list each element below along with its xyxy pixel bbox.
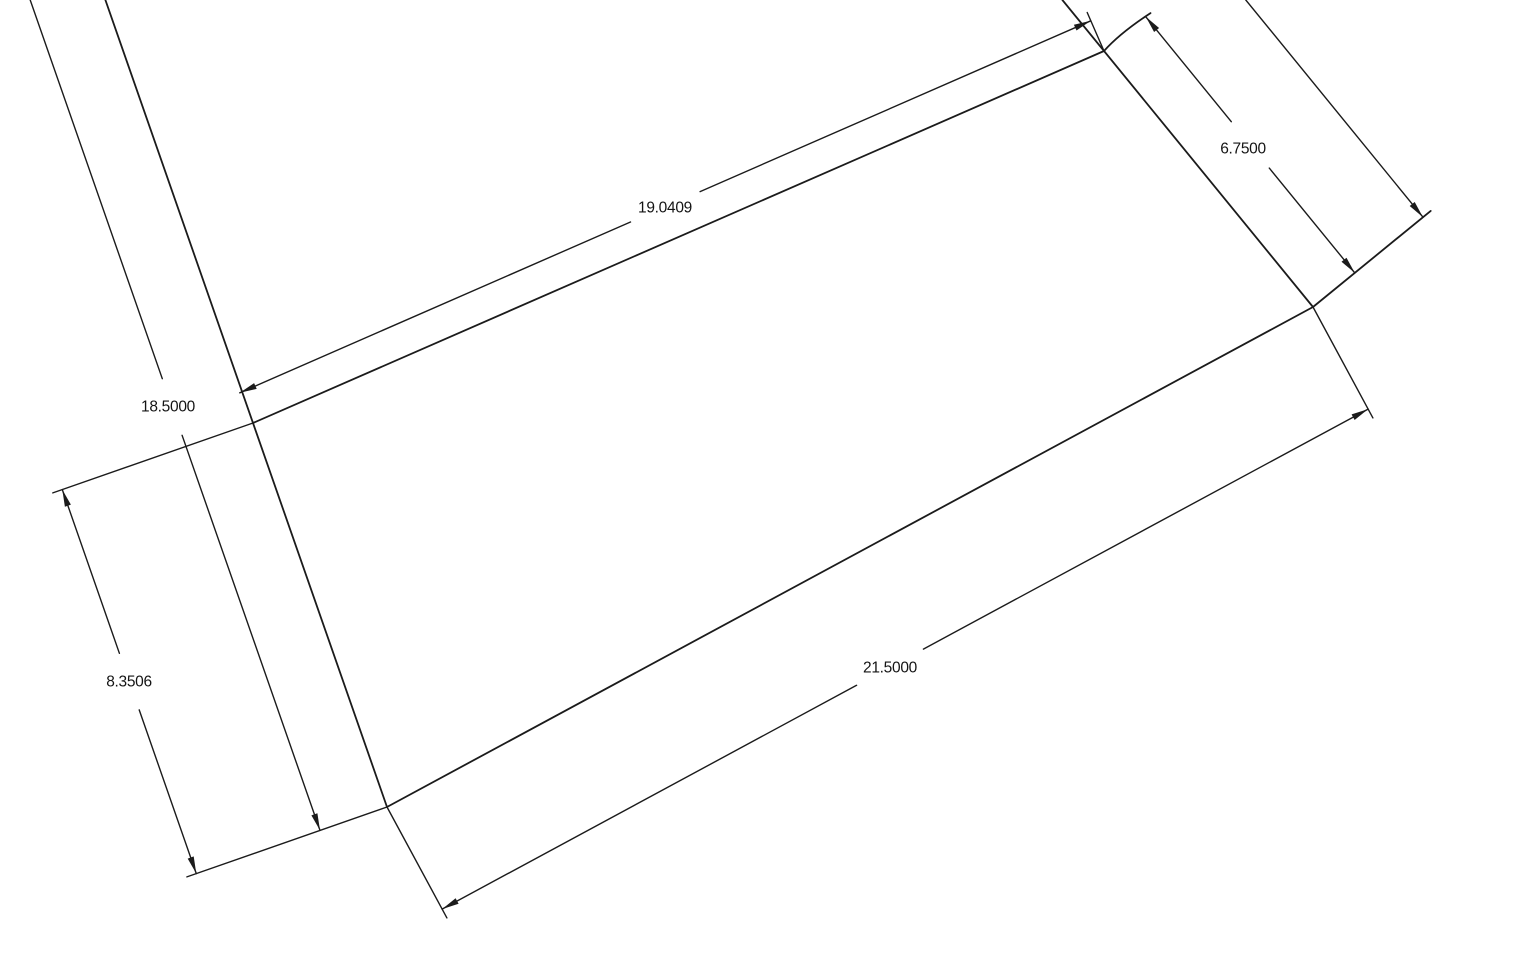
cad-drawing-canvas: 19.0409 6.7500 18.5000 8.3506 21.5000 <box>0 0 1528 960</box>
dim-line-left-lower-segment <box>139 710 196 874</box>
dim-line-flap-upper-segment <box>1146 17 1232 122</box>
dim-label-left-strip-length: 18.5000 <box>141 399 196 416</box>
dim-label-right-flap-length: 6.7500 <box>1220 141 1266 158</box>
arrowhead-left-dim-bottom <box>188 856 197 873</box>
flap-top-arc-edge <box>1104 13 1151 51</box>
right-fold-edge <box>1062 0 1313 307</box>
ext-line-bottom-dim-right <box>1313 307 1373 418</box>
ext-line-left-dim-top <box>53 423 253 493</box>
dim-label-top-width: 19.0409 <box>638 200 692 217</box>
ext-line-left-dim-bottom <box>187 807 387 877</box>
dim-line-bottom-left-segment <box>442 685 856 909</box>
flat-pattern-drawing: 19.0409 6.7500 18.5000 8.3506 21.5000 <box>0 0 1528 960</box>
arrowhead-bottom-dim-right <box>1352 409 1369 420</box>
flap-end-edge <box>1313 211 1431 307</box>
dim-line-top-right-segment <box>700 21 1091 192</box>
dim-line-strip-upper-segment <box>30 0 162 379</box>
dim-line-left-upper-segment <box>62 490 119 654</box>
dim-line-strip-lower-segment <box>182 435 320 830</box>
dim-line-flap-lower-segment <box>1269 168 1355 273</box>
arrowhead-top-dim-right <box>1074 21 1091 31</box>
arrowhead-strip-dim-bottom <box>311 813 320 830</box>
arrowhead-bottom-dim-left <box>442 898 459 909</box>
arrowhead-left-dim-top <box>62 490 71 507</box>
dim-label-bottom-width: 21.5000 <box>863 660 918 677</box>
arrowhead-top-dim-left <box>240 383 257 393</box>
dim-label-left-side-length: 8.3506 <box>106 674 152 691</box>
ext-line-bottom-dim-left <box>387 807 447 918</box>
ext-line-top-dim-right <box>1087 13 1104 52</box>
top-edge <box>253 51 1104 423</box>
dim-line-bottom-right-segment <box>923 409 1368 649</box>
bottom-edge <box>387 307 1313 807</box>
dim-line-flap-outer-partial <box>1246 0 1423 217</box>
dim-line-top-left-segment <box>240 222 631 393</box>
